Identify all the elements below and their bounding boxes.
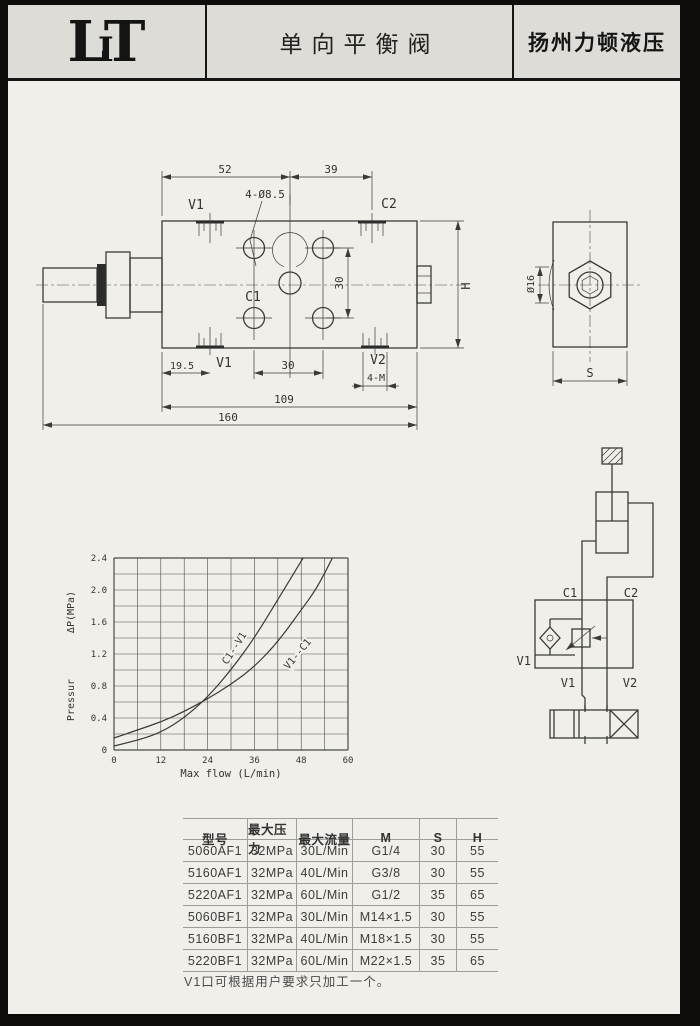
table-cell: 5220AF1 [183, 884, 248, 905]
chart-tick-label: 60 [343, 756, 354, 766]
table-cell: 55 [457, 928, 498, 949]
dim-19-5: 19.5 [170, 361, 194, 372]
chart-tick-label: 0 [111, 756, 116, 766]
performance-chart: 0122436486000.40.81.21.62.02.4 Max flow … [66, 554, 353, 780]
dim-h: H [459, 282, 473, 289]
front-view-drawing: 52 39 4-Ø8.5 V1 C2 C1 30 H 19.5 V1 30 V2… [36, 163, 473, 430]
table-cell: 32MPa [248, 862, 297, 883]
table-row: 5060BF132MPa30L/MinM14×1.53055 [183, 906, 498, 928]
table-cell: 65 [457, 950, 498, 971]
dim-s: S [586, 366, 593, 380]
chart-tick-label: 0.8 [91, 682, 107, 692]
port-label-c2: C2 [381, 197, 397, 212]
table-cell: 35 [420, 884, 457, 905]
table-cell: 55 [457, 840, 498, 861]
port-marks-top-v1 [196, 213, 224, 243]
dim-dia16: Ø16 [525, 275, 537, 293]
circuit-label-c2: C2 [624, 586, 638, 600]
chart-tick-label: 1.6 [91, 618, 107, 628]
directional-valve-symbol [550, 705, 638, 744]
dim-30-bottom: 30 [281, 359, 294, 372]
chart-tick-label: 36 [249, 756, 260, 766]
circuit-label-v2: V2 [623, 676, 637, 690]
circuit-label-v1: V1 [561, 676, 575, 690]
circuit-label-v1-side: V1 [517, 654, 531, 668]
table-cell: 5160AF1 [183, 862, 248, 883]
port-marks-bottom-v1 [196, 327, 224, 355]
table-cell: 65 [457, 884, 498, 905]
table-cell: 5060BF1 [183, 906, 248, 927]
chart-tick-label: 1.2 [91, 650, 107, 660]
dim-109: 109 [274, 393, 294, 406]
table-cell: 32MPa [248, 950, 297, 971]
curve-label-c1-v1: C1--V1 [220, 630, 249, 666]
chart-tick-label: 0 [102, 746, 107, 756]
chart-x-axis-title: Max flow (L/min) [180, 768, 281, 780]
table-cell: 55 [457, 906, 498, 927]
port-label-v1-bottom: V1 [216, 356, 232, 371]
table-cell: 5160BF1 [183, 928, 248, 949]
chart-tick-label: 2.0 [91, 586, 107, 596]
table-row: 5160AF132MPa40L/MinG3/83055 [183, 862, 498, 884]
port-label-c1: C1 [245, 290, 261, 305]
table-cell: 35 [420, 950, 457, 971]
table-cell: G3/8 [353, 862, 420, 883]
table-note: V1口可根据用户要求只加工一个。 [184, 971, 390, 990]
table-cell: G1/4 [353, 840, 420, 861]
table-cell: 30 [420, 840, 457, 861]
port-label-v1-top: V1 [188, 198, 204, 213]
table-cell: 5060AF1 [183, 840, 248, 861]
table-row: 5160BF132MPa40L/MinM18×1.53055 [183, 928, 498, 950]
table-cell: 55 [457, 862, 498, 883]
port-label-v2: V2 [370, 353, 386, 368]
table-cell: 30 [420, 906, 457, 927]
spec-table: 型号最大压力最大流量MSH5060AF132MPa30L/MinG1/43055… [183, 818, 498, 972]
dim-52: 52 [218, 163, 231, 176]
table-cell: 32MPa [248, 840, 297, 861]
table-cell: 60L/Min [297, 884, 353, 905]
table-cell: 5220BF1 [183, 950, 248, 971]
table-cell: 32MPa [248, 906, 297, 927]
table-cell: 32MPa [248, 928, 297, 949]
table-cell: 60L/Min [297, 950, 353, 971]
table-header-row: 型号最大压力最大流量MSH [183, 819, 498, 840]
table-cell: 30 [420, 928, 457, 949]
chart-tick-label: 12 [155, 756, 166, 766]
table-row: 5220AF132MPa60L/MinG1/23565 [183, 884, 498, 906]
chart-tick-label: 2.4 [91, 554, 107, 564]
port-marks-bottom-v2 [361, 327, 389, 355]
side-view-drawing: Ø16 S [525, 210, 642, 386]
chart-y-axis-title-upper: ΔP(MPa) [66, 591, 77, 633]
page-frame: L I T 单向平衡阀 扬州力顿液压 [0, 0, 700, 1026]
table-cell: 30L/Min [297, 840, 353, 861]
table-row: 5220BF132MPa60L/MinM22×1.53565 [183, 950, 498, 972]
port-marks-top-c2 [358, 213, 386, 243]
table-cell: 40L/Min [297, 928, 353, 949]
table-cell: M14×1.5 [353, 906, 420, 927]
chart-tick-label: 0.4 [91, 714, 107, 724]
table-cell: G1/2 [353, 884, 420, 905]
table-cell: 40L/Min [297, 862, 353, 883]
dim-4m: 4-M [367, 373, 385, 384]
chart-y-axis-title-lower: Pressur [66, 679, 77, 721]
table-row: 5060AF132MPa30L/MinG1/43055 [183, 840, 498, 862]
chart-tick-label: 48 [296, 756, 307, 766]
circuit-label-c1: C1 [563, 586, 577, 600]
dim-39: 39 [324, 163, 337, 176]
dim-30-vertical: 30 [333, 276, 346, 289]
chart-tick-label: 24 [202, 756, 213, 766]
table-cell: 30 [420, 862, 457, 883]
dim-160: 160 [218, 411, 238, 424]
cylinder-symbol [596, 492, 628, 553]
table-cell: 32MPa [248, 884, 297, 905]
balance-valve-block [535, 600, 633, 668]
table-cell: M22×1.5 [353, 950, 420, 971]
hydraulic-circuit-diagram: C1 C2 V1 V1 V2 [517, 448, 653, 744]
holes-callout: 4-Ø8.5 [245, 188, 285, 201]
load-symbol [602, 448, 622, 464]
table-cell: M18×1.5 [353, 928, 420, 949]
curve-label-v1-c1: V1--C1 [282, 637, 314, 672]
table-cell: 30L/Min [297, 906, 353, 927]
